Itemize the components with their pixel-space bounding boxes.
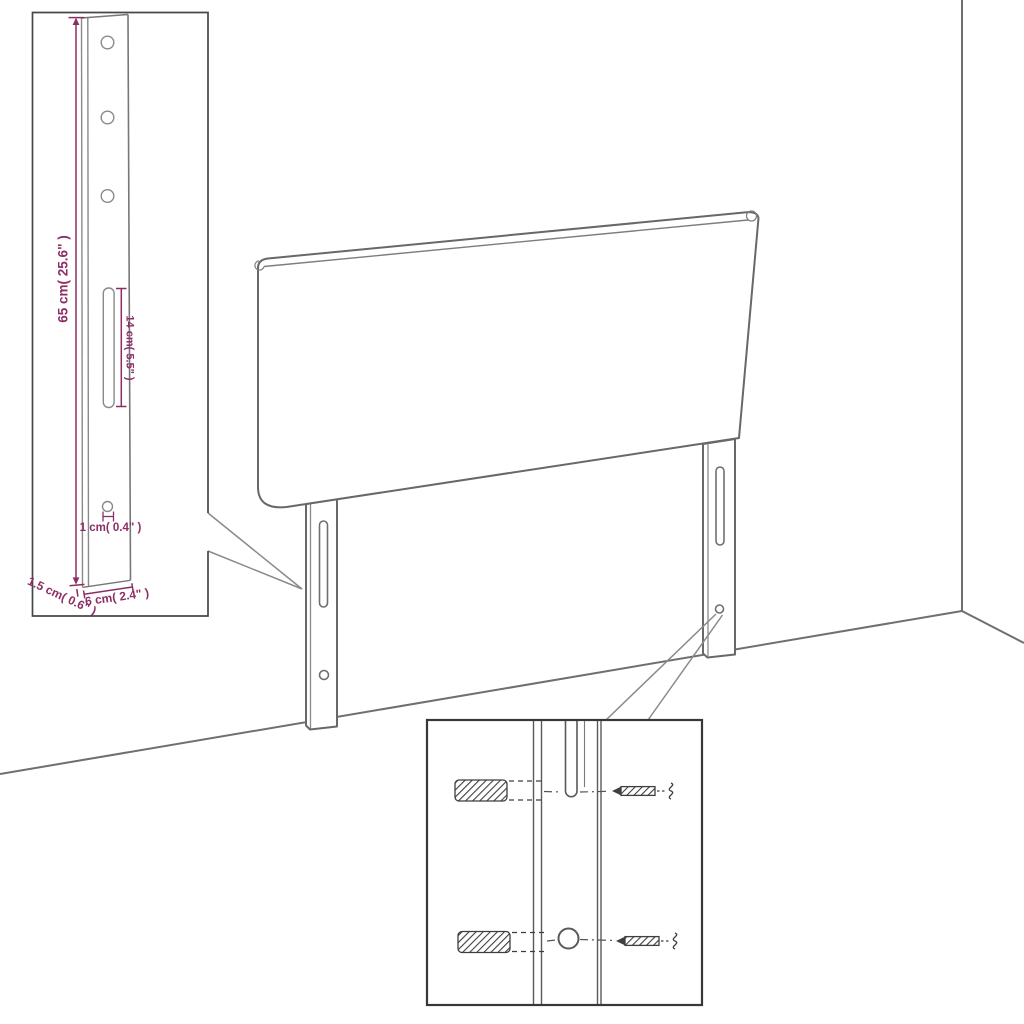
inset-box-border-bottom [427, 720, 702, 1005]
headboard-leg-left [306, 499, 337, 730]
headboard-leg-right [703, 439, 735, 658]
dimension-label-14cm: 14 cm( 5.5" ) [124, 315, 136, 380]
inset-leg-side-face-line [88, 17, 89, 587]
mounting-detail-inset [427, 720, 702, 1005]
dimension-label-65cm: 65 cm( 25.6" ) [56, 235, 71, 322]
dimension-label-1cm: 1 cm( 0.4" ) [80, 522, 142, 534]
inset-leg-left-edge [82, 18, 83, 588]
product-diagram-page: 65 cm( 25.6" ) 14 cm( 5.5" ) 1 cm( 0.4" … [0, 0, 1024, 1024]
headboard-assembly-diagram: 65 cm( 25.6" ) 14 cm( 5.5" ) 1 cm( 0.4" … [0, 0, 1024, 1024]
